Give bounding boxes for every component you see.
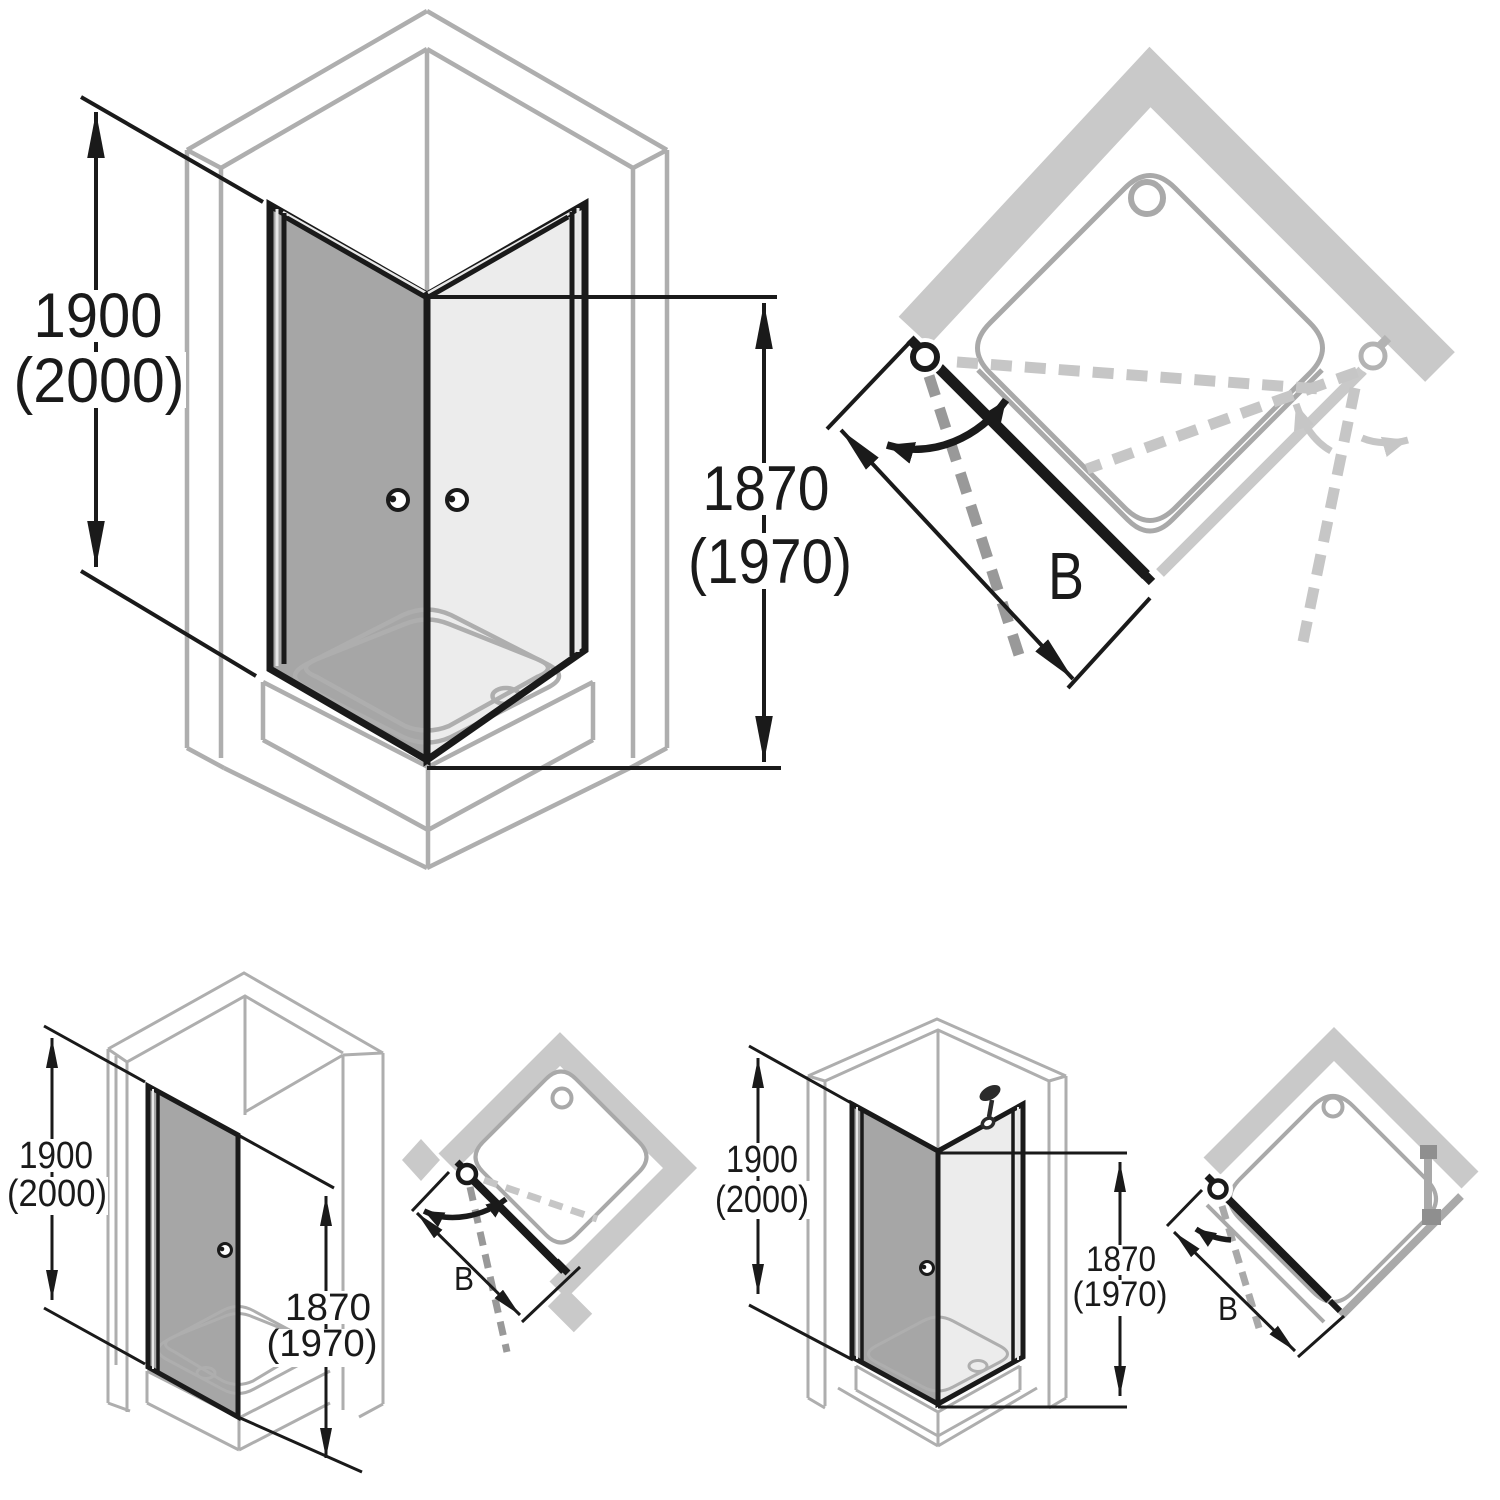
svg-text:1900: 1900 <box>19 1135 93 1177</box>
svg-text:1900: 1900 <box>34 281 163 351</box>
svg-text:(2000): (2000) <box>7 1173 107 1215</box>
svg-text:(2000): (2000) <box>14 346 185 416</box>
svg-text:B: B <box>454 1260 474 1297</box>
svg-text:B: B <box>1048 539 1084 614</box>
svg-text:(1970): (1970) <box>1073 1275 1168 1314</box>
svg-text:1870: 1870 <box>703 454 830 524</box>
svg-text:(2000): (2000) <box>715 1179 809 1221</box>
svg-text:(1970): (1970) <box>267 1323 378 1365</box>
svg-text:1870: 1870 <box>1086 1240 1156 1279</box>
svg-text:B: B <box>1218 1290 1238 1327</box>
svg-text:1900: 1900 <box>726 1139 798 1181</box>
svg-text:(1970): (1970) <box>688 527 852 597</box>
